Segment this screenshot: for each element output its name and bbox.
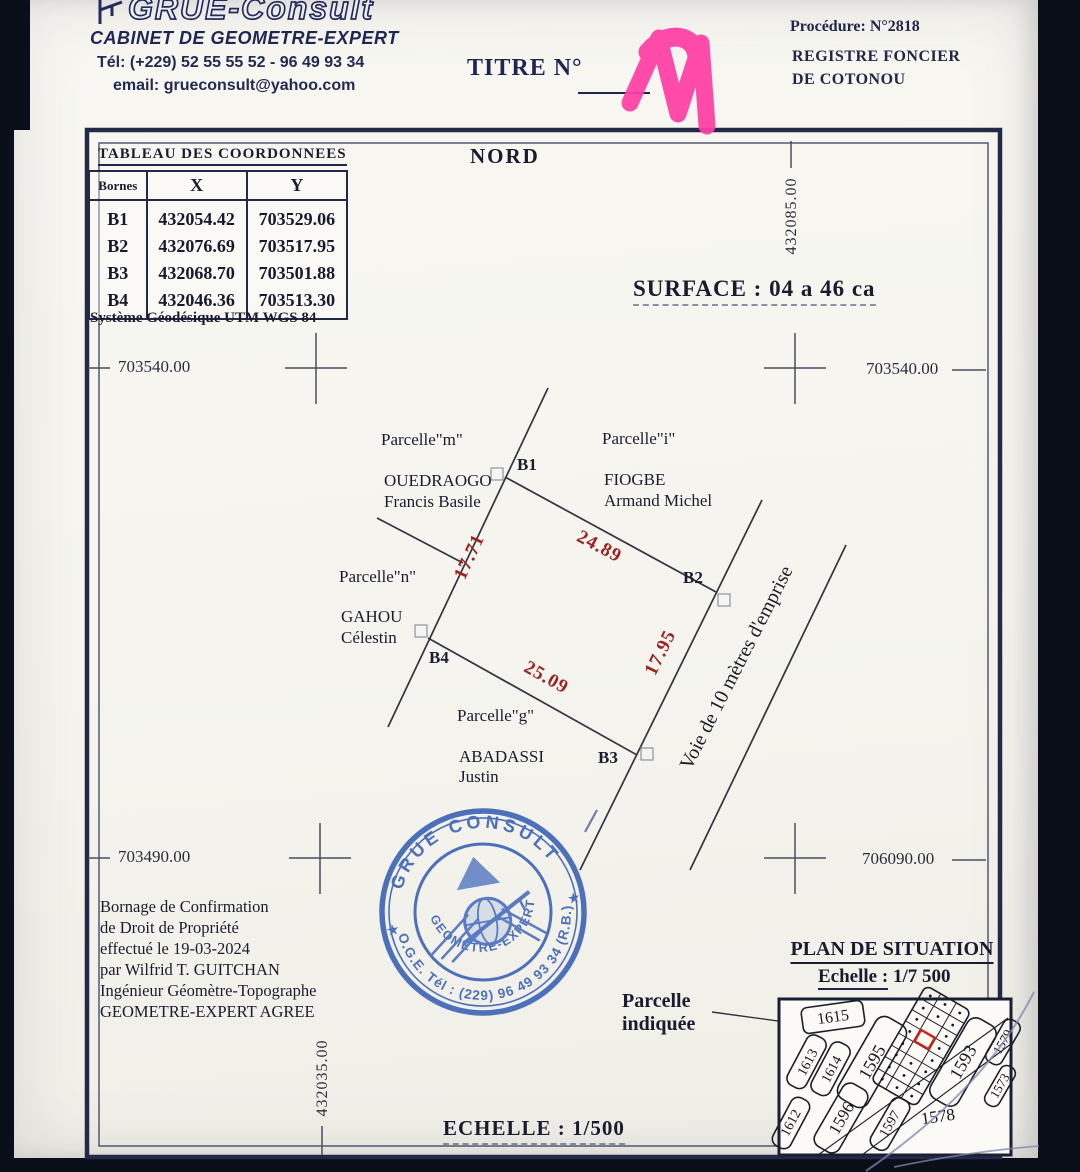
neighbor-parcel-label: Parcelle"g" bbox=[457, 706, 534, 726]
situation-scale-value: 1/7 500 bbox=[893, 966, 951, 987]
surveyor-stamp: GRUE CONSULT O.G.E. Tél : (229) 96 49 93… bbox=[366, 795, 600, 1029]
scanned-survey-document: { "letterhead": { "brand": "GRUE-Consult… bbox=[0, 0, 1080, 1172]
borne-id: B1 bbox=[90, 206, 146, 233]
situation-scale-word: Echelle : bbox=[818, 966, 888, 990]
neighbor-owner-name: Armand Michel bbox=[604, 491, 712, 511]
north-label: NORD bbox=[470, 144, 540, 169]
neighbor-owner-name: GAHOU bbox=[341, 607, 402, 627]
phone-line: Tél: (+229) 52 55 55 52 - 96 49 93 34 bbox=[97, 54, 364, 72]
certification-line: par Wilfrid T. GUITCHAN bbox=[100, 960, 280, 980]
borne-id: B3 bbox=[90, 260, 146, 287]
neighbor-owner-name: Célestin bbox=[341, 628, 397, 648]
neighbor-owner-name: OUEDRAOGO bbox=[384, 471, 492, 491]
title-number-underline bbox=[578, 72, 650, 94]
situation-scale-label: Echelle : 1/7 500 bbox=[818, 966, 950, 988]
easting-label-top: 432085.00 bbox=[783, 178, 800, 255]
corner-label-b2: B2 bbox=[683, 568, 703, 588]
surface-label: SURFACE : 04 a 46 ca bbox=[633, 276, 876, 306]
neighbor-parcel-label: Parcelle"m" bbox=[381, 430, 463, 450]
neighbor-owner-name: FIOGBE bbox=[604, 470, 665, 490]
corner-label-b3: B3 bbox=[598, 748, 618, 768]
coords-table: Bornes X Y B1 B2 B3 B4 432054.42 432076.… bbox=[88, 170, 348, 320]
borne-id: B2 bbox=[90, 233, 146, 260]
certification-line: Bornage de Confirmation bbox=[100, 897, 269, 917]
procedure-number: Procédure: N°2818 bbox=[790, 18, 920, 36]
callout-line-2: indiquée bbox=[622, 1013, 695, 1036]
stamp-star-right-icon: ★ bbox=[566, 890, 582, 908]
title-label: TITRE N° bbox=[467, 55, 583, 82]
certification-line: Ingénieur Géomètre-Topographe bbox=[100, 981, 316, 1001]
registre-line-1: REGISTRE FONCIER bbox=[792, 48, 960, 66]
grid-label-bottom-right: 706090.00 bbox=[862, 849, 934, 869]
borne-y: 703517.95 bbox=[248, 233, 346, 260]
main-scale-label: ECHELLE : 1/500 bbox=[443, 1116, 625, 1145]
borne-y: 703501.88 bbox=[248, 260, 346, 287]
easting-label-bottom: 432035.00 bbox=[314, 1040, 331, 1117]
neighbor-parcel-label: Parcelle"i" bbox=[602, 429, 675, 449]
neighbor-parcel-label: Parcelle"n" bbox=[339, 567, 416, 587]
stamp-star-left-icon: ★ bbox=[385, 922, 401, 940]
borne-x: 432054.42 bbox=[148, 206, 246, 233]
col-header-y: Y bbox=[246, 172, 346, 199]
certification-line: GEOMETRE-EXPERT AGREE bbox=[100, 1002, 315, 1022]
cabinet-subtitle: CABINET DE GEOMETRE-EXPERT bbox=[90, 28, 399, 49]
col-header-x: X bbox=[146, 172, 246, 199]
grid-label-top-right: 703540.00 bbox=[866, 359, 938, 379]
neighbor-owner-name: Francis Basile bbox=[384, 492, 481, 512]
neighbor-owner-name: Justin bbox=[459, 767, 499, 787]
corner-label-b4: B4 bbox=[429, 648, 449, 668]
certification-line: de Droit de Propriété bbox=[100, 918, 239, 938]
grid-label-bottom-left: 703490.00 bbox=[118, 847, 190, 867]
geodesic-system-note: Système Géodésique UTM WGS 84 bbox=[90, 310, 316, 327]
corner-label-b1: B1 bbox=[517, 455, 537, 475]
parcel-boundary-lines bbox=[377, 388, 846, 870]
brand-logo: GRUE-Consult bbox=[128, 0, 374, 27]
registre-line-2: DE COTONOU bbox=[792, 71, 906, 89]
coords-table-title: TABLEAU DES COORDONNEES bbox=[98, 146, 347, 166]
borne-y: 703529.06 bbox=[248, 206, 346, 233]
neighbor-owner-name: ABADASSI bbox=[459, 747, 544, 767]
email-line: email: grueconsult@yahoo.com bbox=[113, 77, 355, 95]
situation-inset-map: 1615 1613 1614 1595 bbox=[769, 985, 1022, 1156]
situation-plan-title: PLAN DE SITUATION bbox=[791, 938, 994, 964]
borne-x: 432068.70 bbox=[148, 260, 246, 287]
certification-line: effectué le 19-03-2024 bbox=[100, 939, 250, 959]
callout-line-1: Parcelle bbox=[622, 990, 690, 1013]
grid-label-top-left: 703540.00 bbox=[118, 357, 190, 377]
borne-x: 432076.69 bbox=[148, 233, 246, 260]
col-header-bornes: Bornes bbox=[90, 172, 146, 199]
